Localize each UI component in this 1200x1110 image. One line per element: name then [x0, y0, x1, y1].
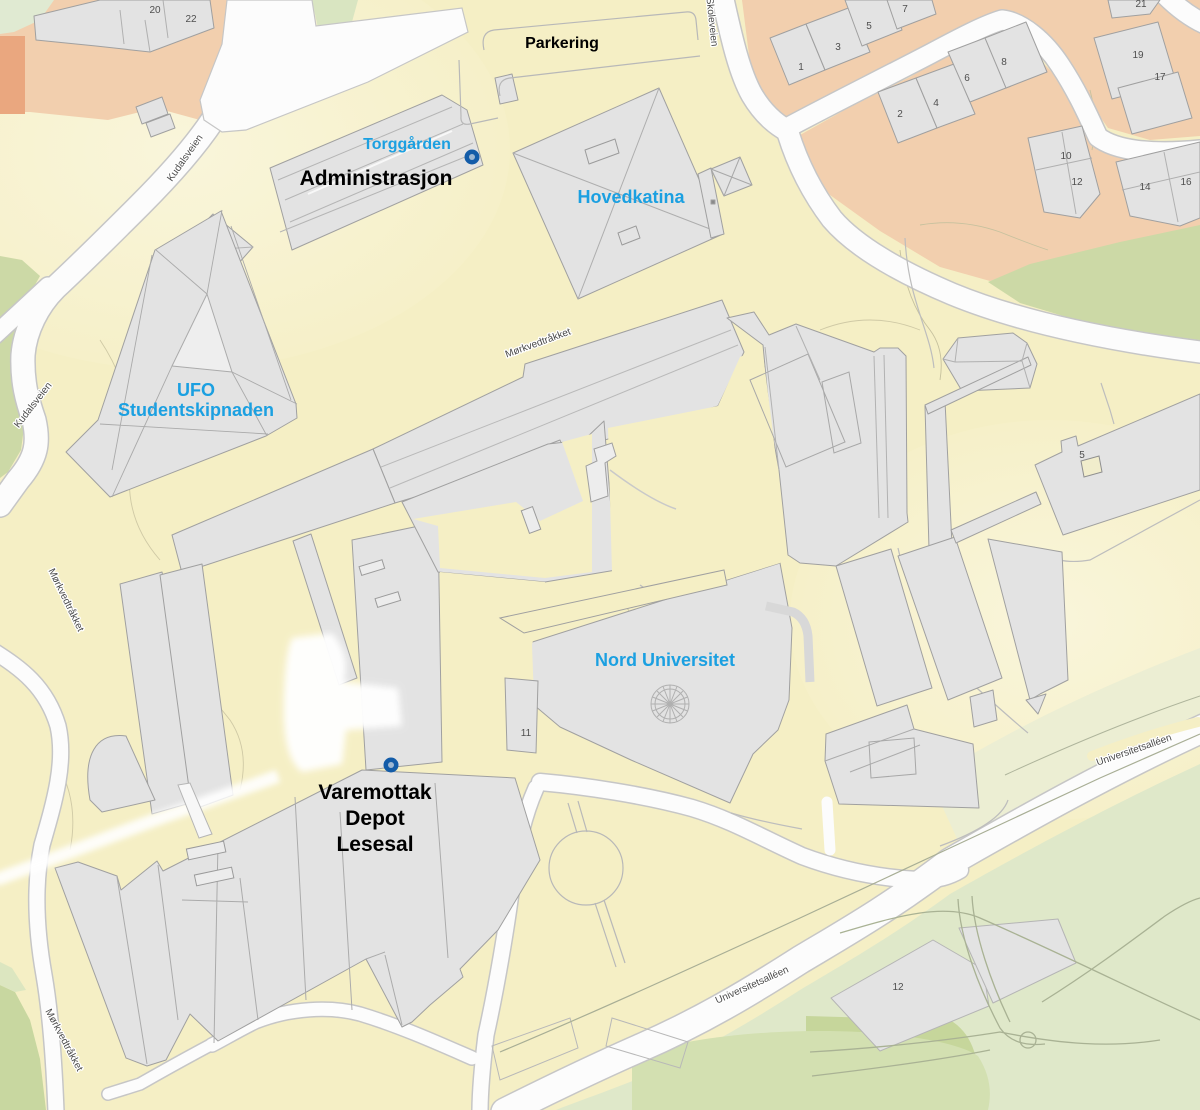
svg-text:Nord Universitet: Nord Universitet: [595, 650, 735, 670]
svg-text:19: 19: [1132, 50, 1144, 61]
svg-text:Studentskipnaden: Studentskipnaden: [118, 400, 274, 420]
svg-text:Administrasjon: Administrasjon: [300, 167, 453, 190]
svg-text:5: 5: [1079, 450, 1085, 461]
svg-text:12: 12: [892, 982, 904, 993]
svg-text:2: 2: [897, 109, 903, 120]
svg-text:10: 10: [1060, 151, 1072, 162]
svg-text:16: 16: [1180, 177, 1192, 188]
svg-text:17: 17: [1154, 72, 1166, 83]
svg-text:Lesesal: Lesesal: [336, 833, 413, 856]
svg-text:7: 7: [902, 4, 908, 15]
svg-text:6: 6: [964, 73, 970, 84]
svg-text:Hovedkatina: Hovedkatina: [577, 187, 685, 207]
svg-text:Parkering: Parkering: [525, 35, 599, 52]
svg-text:Torggården: Torggården: [363, 135, 451, 153]
svg-text:Varemottak: Varemottak: [318, 781, 432, 804]
svg-text:4: 4: [933, 98, 939, 109]
svg-text:8: 8: [1001, 57, 1007, 68]
svg-text:11: 11: [521, 728, 532, 739]
svg-text:1: 1: [798, 62, 804, 73]
svg-text:22: 22: [185, 14, 197, 25]
svg-text:Depot: Depot: [345, 807, 405, 830]
svg-text:20: 20: [149, 5, 161, 16]
svg-text:UFO: UFO: [177, 380, 215, 400]
svg-text:5: 5: [866, 21, 872, 32]
svg-text:21: 21: [1135, 0, 1147, 10]
svg-text:12: 12: [1071, 177, 1083, 188]
svg-text:3: 3: [835, 42, 841, 53]
svg-text:14: 14: [1139, 182, 1151, 193]
